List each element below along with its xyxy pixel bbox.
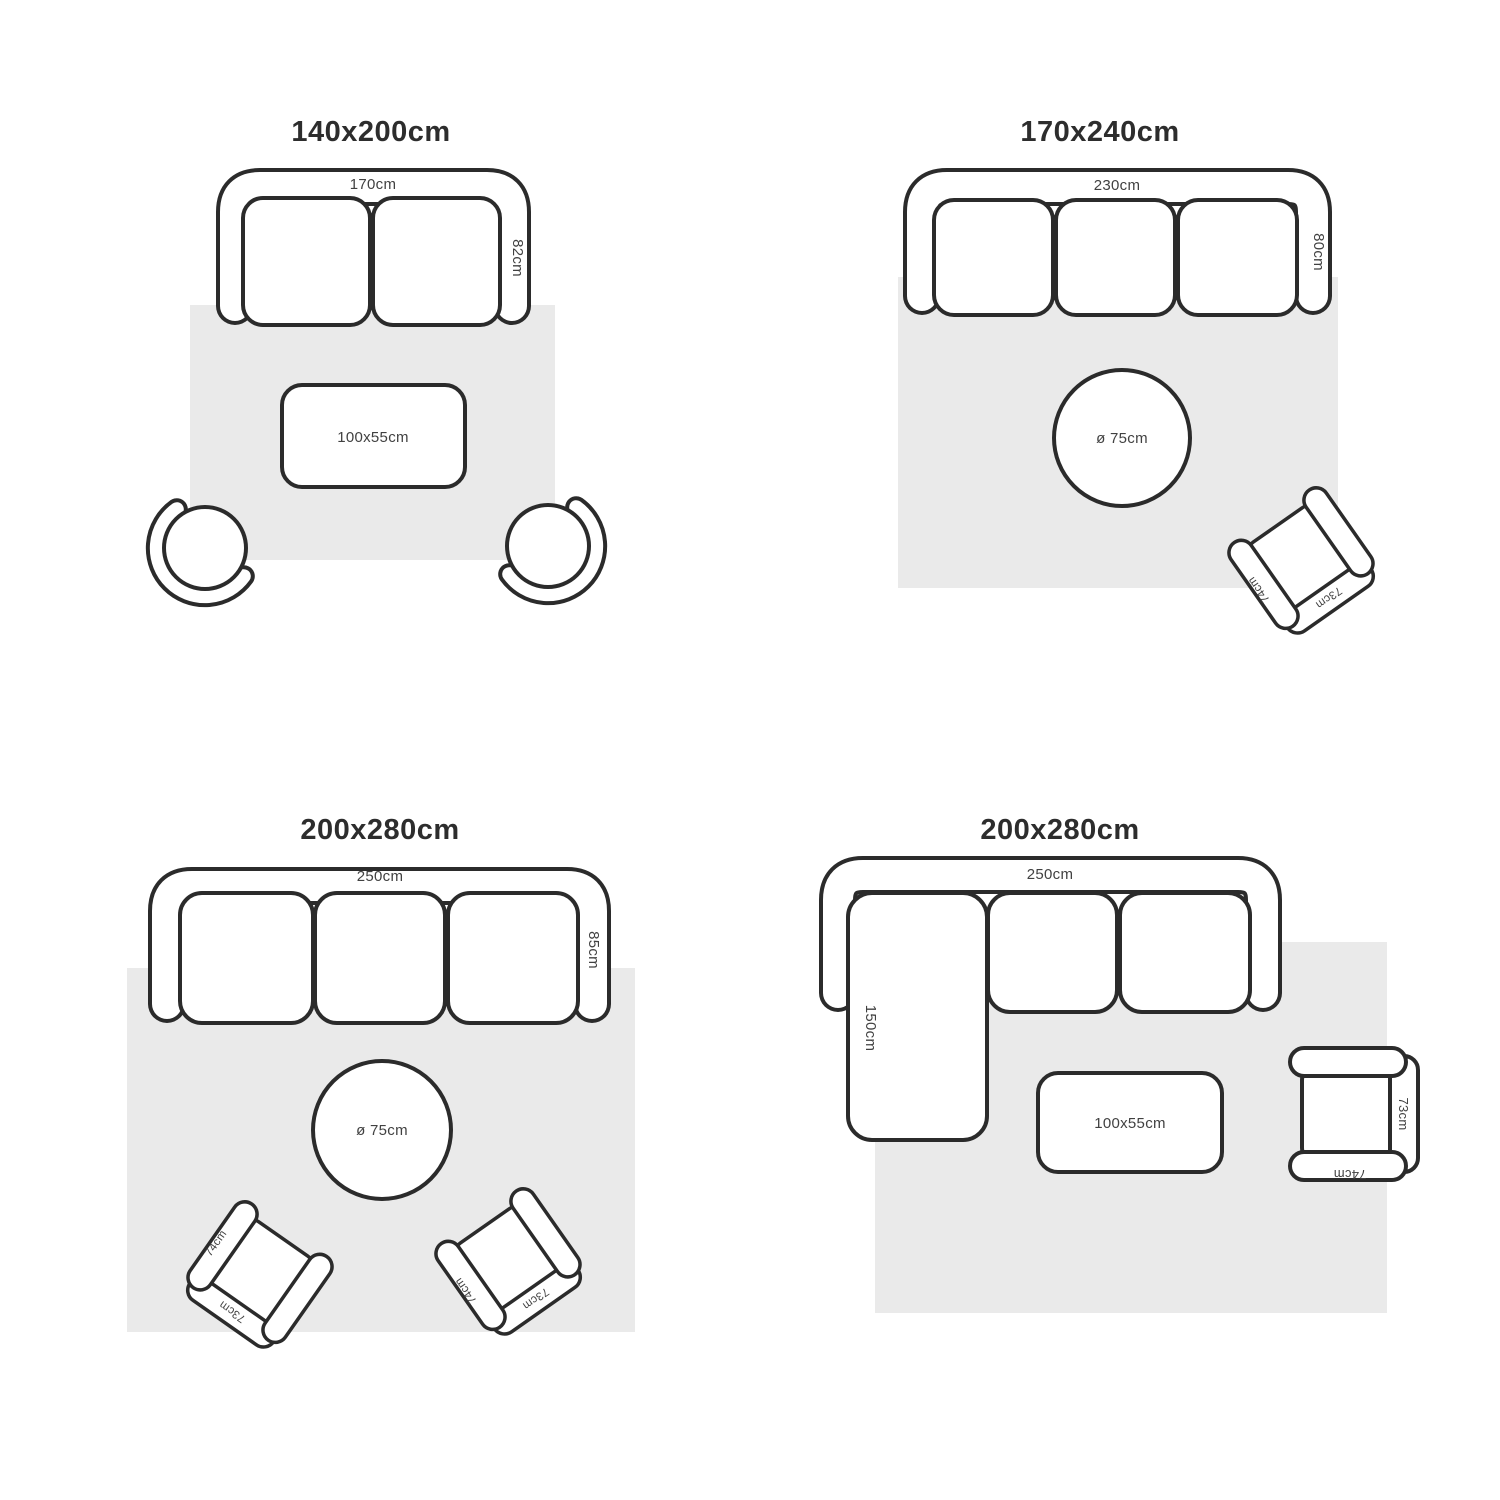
sofa-cushion xyxy=(448,893,578,1023)
coffee-table-label: 100x55cm xyxy=(1094,1115,1166,1132)
sofa-cushion xyxy=(243,198,370,325)
sofa-cushion xyxy=(180,893,313,1023)
sofa-width-label: 230cm xyxy=(1094,177,1141,194)
armchair xyxy=(1290,1048,1418,1182)
rug-size-guide-page: 73cm 74cm 140x200cm 170cm 82cm 100x55cm … xyxy=(0,0,1500,1500)
chaise-length-label: 150cm xyxy=(862,1005,879,1052)
tub-chair-left xyxy=(157,507,246,596)
layout-title: 170x240cm xyxy=(1020,116,1179,148)
sofa-depth-label: 82cm xyxy=(509,239,526,277)
sofa-cushion xyxy=(988,893,1117,1012)
rug-size-guide-diagram: 73cm 74cm 140x200cm 170cm 82cm 100x55cm … xyxy=(0,0,1500,1500)
sofa-cushion xyxy=(315,893,445,1023)
sofa-cushion xyxy=(1120,893,1250,1012)
sofa-cushion xyxy=(373,198,500,325)
layout-title: 200x280cm xyxy=(980,814,1139,846)
sofa-width-label: 250cm xyxy=(357,868,404,885)
layout-200x280-three-seater: 200x280cm 250cm 85cm ø 75cm xyxy=(127,814,635,1356)
round-table-label: ø 75cm xyxy=(1096,430,1148,447)
layout-140x200: 140x200cm 170cm 82cm 100x55cm xyxy=(157,116,596,596)
layout-title: 200x280cm xyxy=(300,814,459,846)
sofa-width-label: 170cm xyxy=(350,176,397,193)
layout-200x280-chaise: 200x280cm 250cm 150cm 100x55cm xyxy=(838,814,1418,1313)
sofa-width-label: 250cm xyxy=(1027,866,1074,883)
sofa-cushion xyxy=(1056,200,1175,315)
layout-title: 140x200cm xyxy=(291,116,450,148)
sofa-depth-label: 85cm xyxy=(585,931,602,969)
sofa-cushion xyxy=(934,200,1053,315)
coffee-table-label: 100x55cm xyxy=(337,429,409,446)
tub-chair-right xyxy=(507,505,596,594)
round-table-label: ø 75cm xyxy=(356,1122,408,1139)
sofa-depth-label: 80cm xyxy=(1310,233,1327,271)
layout-170x240: 170x240cm 230cm 80cm ø 75cm xyxy=(898,116,1384,642)
sofa-cushion xyxy=(1178,200,1297,315)
